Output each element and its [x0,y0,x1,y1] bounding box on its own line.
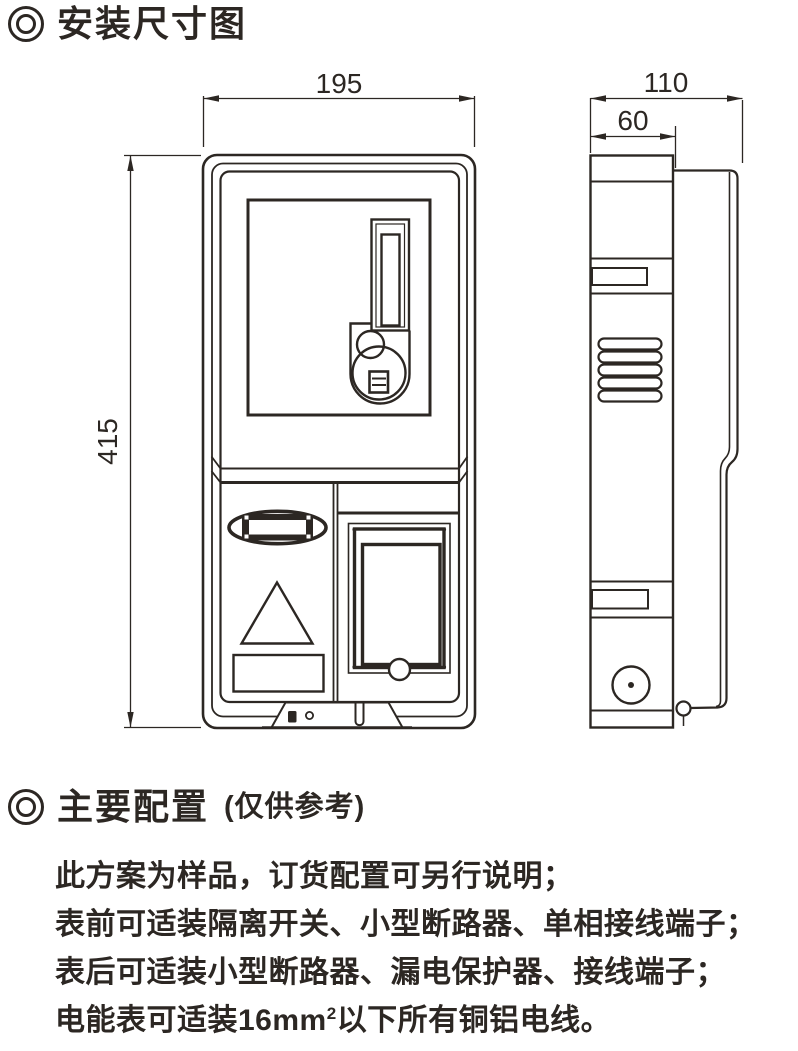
dim-label-side-body-depth: 60 [617,105,648,136]
dim-label-side-total-depth: 110 [644,67,689,98]
door-seam [334,484,338,703]
card-slot-assembly [351,220,410,404]
dimension-front-width: 195 [204,68,475,147]
note-line-1: 此方案为样品，订货配置可另行说明； [55,853,795,901]
handle-recess [229,511,326,543]
vent-louvers [599,339,662,402]
configuration-subtitle: (仅供参考) [224,793,365,822]
configuration-notes: 此方案为样品，订货配置可另行说明； 表前可适装隔离开关、小型断路器、单相接线端子… [55,853,795,1045]
dim-label-front-width: 195 [316,68,363,99]
warning-triangle [242,583,313,644]
side-upper-slot [592,268,647,285]
installation-diagram: 195 415 110 60 [0,0,798,780]
note-line-3: 表后可适装小型断路器、漏电保护器、接线端子； [55,949,795,997]
bullseye-inner-circle [16,797,36,817]
dimension-side-body-depth: 60 [591,105,676,168]
hinge-pin [677,702,691,716]
side-lower-slot [592,590,648,609]
page: 安装尺寸图 [0,0,798,1051]
note-line-4-prefix: 电能表可适装16mm [55,1004,327,1037]
note-line-2: 表前可适装隔离开关、小型断路器、单相接线端子； [55,901,795,949]
side-view [591,156,738,728]
divider-band [212,457,468,483]
note-line-4-suffix: 以下所有铜铝电线。 [337,1004,612,1037]
thumb-recess [389,659,410,680]
dimension-side-total-depth: 110 [591,67,743,163]
front-view [203,155,475,728]
side-door-profile [673,171,738,709]
bottom-seal-area [262,703,412,728]
meter-door [338,513,460,680]
label-plate [234,655,324,692]
note-line-4-superscript: 2 [327,1004,337,1023]
dim-label-front-height: 415 [92,418,123,465]
note-line-4: 电能表可适装16mm2以下所有铜铝电线。 [55,997,795,1045]
dimension-front-height: 415 [92,156,201,728]
configuration-title: 主要配置 [57,789,209,825]
section-heading-configuration: 主要配置 (仅供参考) [8,789,365,825]
bullseye-icon [8,789,44,825]
